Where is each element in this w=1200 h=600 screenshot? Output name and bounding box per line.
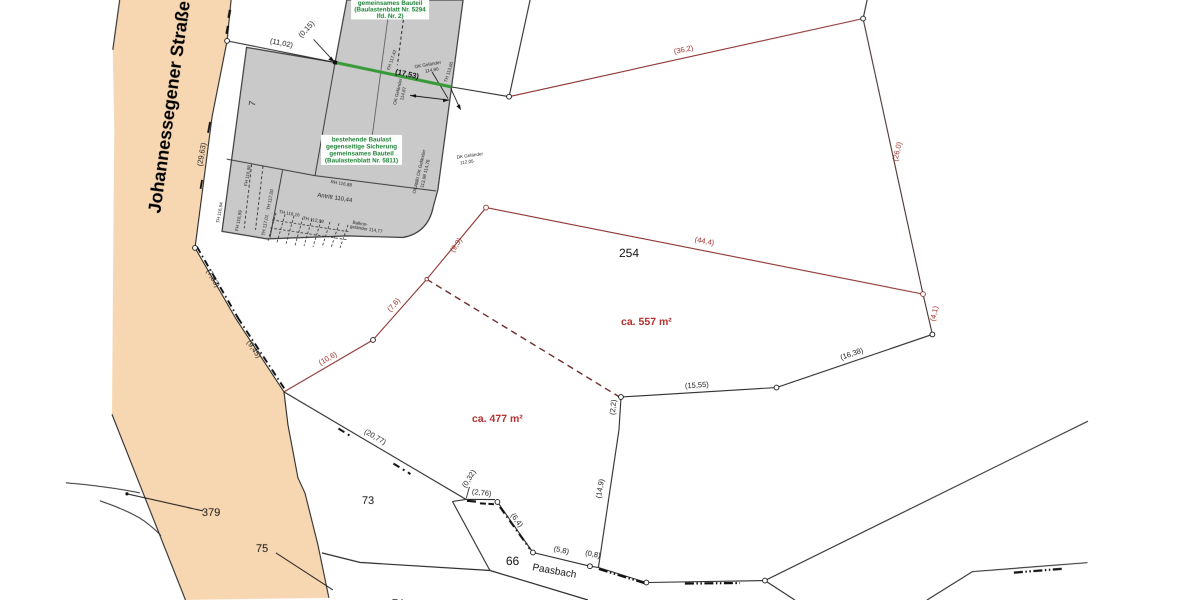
svg-text:(2,2): (2,2) (608, 399, 619, 416)
svg-text:254: 254 (619, 246, 639, 260)
svg-text:bestehende Baulast: bestehende Baulast (332, 136, 392, 143)
svg-text:73: 73 (362, 495, 374, 507)
svg-text:(Baulastenblatt Nr. 5811): (Baulastenblatt Nr. 5811) (325, 157, 398, 164)
svg-text:ca. 557 m²: ca. 557 m² (621, 316, 672, 328)
svg-text:gemeinsames Bauteil: gemeinsames Bauteil (329, 150, 394, 157)
svg-text:66: 66 (506, 554, 520, 568)
svg-text:gegenseitige Sicherung: gegenseitige Sicherung (326, 143, 397, 150)
svg-text:(15,55): (15,55) (685, 380, 710, 390)
svg-text:ca. 477 m²: ca. 477 m² (472, 413, 523, 425)
svg-text:75: 75 (256, 543, 268, 555)
svg-text:379: 379 (202, 507, 220, 519)
svg-text:lfd. Nr. 2): lfd. Nr. 2) (377, 13, 404, 20)
